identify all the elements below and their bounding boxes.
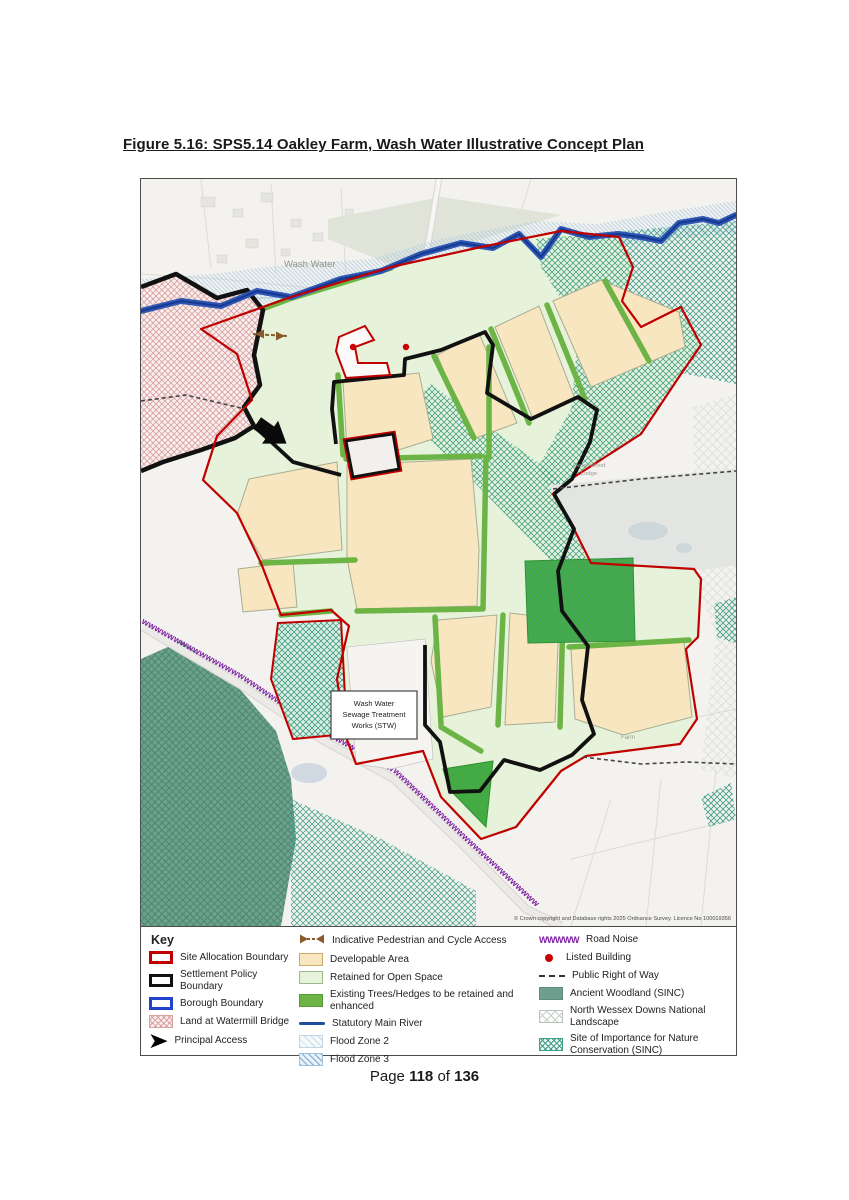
site-allocation-swatch (149, 951, 173, 964)
key-item-fz3: Flood Zone 3 (299, 1053, 539, 1066)
open-space-label: Retained for Open Space (330, 972, 443, 984)
excluded-parcel (346, 434, 399, 477)
key-item-ancient-woodland: Ancient Woodland (SINC) (539, 987, 734, 1000)
flood-zone2-swatch (299, 1035, 323, 1048)
settlement-policy-label: Settlement Policy Boundary (180, 969, 299, 992)
flood-zone3-swatch (299, 1053, 323, 1066)
key-item-watermill: Land at Watermill Bridge (149, 1015, 299, 1028)
prow-icon (539, 975, 565, 977)
nwd-swatch (539, 1010, 563, 1023)
footer-page-number: 118 (409, 1068, 433, 1085)
key-item-nwd: North Wessex Downs National Landscape (539, 1005, 734, 1028)
developable-swatch (299, 953, 323, 966)
key-column-1: Site Allocation Boundary Settlement Poli… (149, 951, 299, 1052)
key-column-3: WWWWW Road Noise Listed Building Public … (539, 933, 734, 1061)
ancient-woodland-swatch (539, 987, 563, 1000)
developable-label: Developable Area (330, 954, 409, 966)
key-item-trees: Existing Trees/Hedges to be retained and… (299, 989, 539, 1012)
road-noise-icon: WWWWW (539, 935, 579, 945)
site-allocation-label: Site Allocation Boundary (180, 952, 288, 964)
ancient-woodland-label: Ancient Woodland (SINC) (570, 988, 684, 1000)
flood-zone3-label: Flood Zone 3 (330, 1054, 389, 1066)
ped-cycle-access-label: Indicative Pedestrian and Cycle Access (332, 935, 507, 947)
key-item-site-allocation: Site Allocation Boundary (149, 951, 299, 964)
map-key: Key Site Allocation Boundary Settlement … (141, 927, 736, 1055)
concept-plan-map: wwwwwwwwwwwwwwwwwwwwwwwwwwwwwwwwwwwwwwww… (141, 179, 736, 927)
trees-label: Existing Trees/Hedges to be retained and… (330, 989, 539, 1012)
open-space-swatch (299, 971, 323, 984)
key-item-developable: Developable Area (299, 953, 539, 966)
sinc-swatch (539, 1038, 563, 1051)
river-swatch (299, 1022, 325, 1026)
nwd-label: North Wessex Downs National Landscape (570, 1005, 734, 1028)
farm-label: Farm (621, 735, 635, 741)
pond-cedar (628, 522, 668, 540)
footer-conj: of (437, 1068, 450, 1085)
borough-boundary-swatch (149, 997, 173, 1010)
cedar-wood-label-1: Cedar Wood (573, 463, 605, 469)
pond-southwest (291, 763, 327, 783)
listed-building-dot-2 (403, 344, 409, 350)
svg-text:Wash Water: Wash Water (354, 699, 395, 708)
trees-swatch (299, 994, 323, 1007)
river-label: Statutory Main River (332, 1018, 423, 1030)
sinc-label: Site of Importance for Nature Conservati… (570, 1033, 734, 1056)
key-item-principal-access: ➤ Principal Access (149, 1034, 299, 1047)
copyright-label: © Crown copyright and Database rights 20… (514, 915, 731, 922)
flood-zone2-label: Flood Zone 2 (330, 1036, 389, 1048)
sinc-patch-east1 (714, 597, 736, 644)
borough-boundary-label: Borough Boundary (180, 998, 263, 1010)
prow-label: Public Right of Way (572, 970, 659, 982)
listed-building-dot-1 (350, 344, 356, 350)
listed-building-icon (545, 954, 553, 962)
key-column-2: Indicative Pedestrian and Cycle Access D… (299, 933, 539, 1071)
principal-access-icon: ➤ (148, 1034, 169, 1047)
footer-prefix: Page (370, 1068, 405, 1085)
key-item-road-noise: WWWWW Road Noise (539, 933, 734, 946)
wash-water-label: Wash Water (284, 259, 336, 270)
key-item-river: Statutory Main River (299, 1017, 539, 1030)
key-item-borough: Borough Boundary (149, 997, 299, 1010)
ped-cycle-access-icon (299, 933, 325, 948)
key-heading: Key (151, 933, 174, 947)
watermill-swatch (149, 1015, 173, 1028)
key-item-open-space: Retained for Open Space (299, 971, 539, 984)
pond-cedar-small (676, 543, 692, 553)
key-item-ped-cycle: Indicative Pedestrian and Cycle Access (299, 933, 539, 948)
key-item-settlement-policy: Settlement Policy Boundary (149, 969, 299, 992)
footer-total-pages: 136 (454, 1068, 479, 1085)
tree-block-east-hatch (525, 558, 635, 643)
key-item-listed: Listed Building (539, 951, 734, 964)
key-item-sinc: Site of Importance for Nature Conservati… (539, 1033, 734, 1056)
watermill-label: Land at Watermill Bridge (180, 1016, 289, 1028)
svg-text:Sewage Treatment: Sewage Treatment (343, 710, 407, 719)
settlement-policy-swatch (149, 974, 173, 987)
svg-text:Works (STW): Works (STW) (352, 721, 397, 730)
listed-building-label: Listed Building (566, 952, 631, 964)
cedar-wood-label-2: Lodge (581, 471, 597, 477)
key-item-fz2: Flood Zone 2 (299, 1035, 539, 1048)
page-footer: Page 118 of 136 (0, 1068, 849, 1085)
stw-callout: Wash Water Sewage Treatment Works (STW) (331, 691, 417, 739)
road-noise-label: Road Noise (586, 934, 638, 946)
figure-title: Figure 5.16: SPS5.14 Oakley Farm, Wash W… (123, 136, 644, 153)
principal-access-label: Principal Access (174, 1035, 247, 1047)
map-canvas: wwwwwwwwwwwwwwwwwwwwwwwwwwwwwwwwwwwwwwww… (141, 179, 736, 926)
figure-frame: wwwwwwwwwwwwwwwwwwwwwwwwwwwwwwwwwwwwwwww… (140, 178, 737, 1056)
key-item-prow: Public Right of Way (539, 969, 734, 982)
